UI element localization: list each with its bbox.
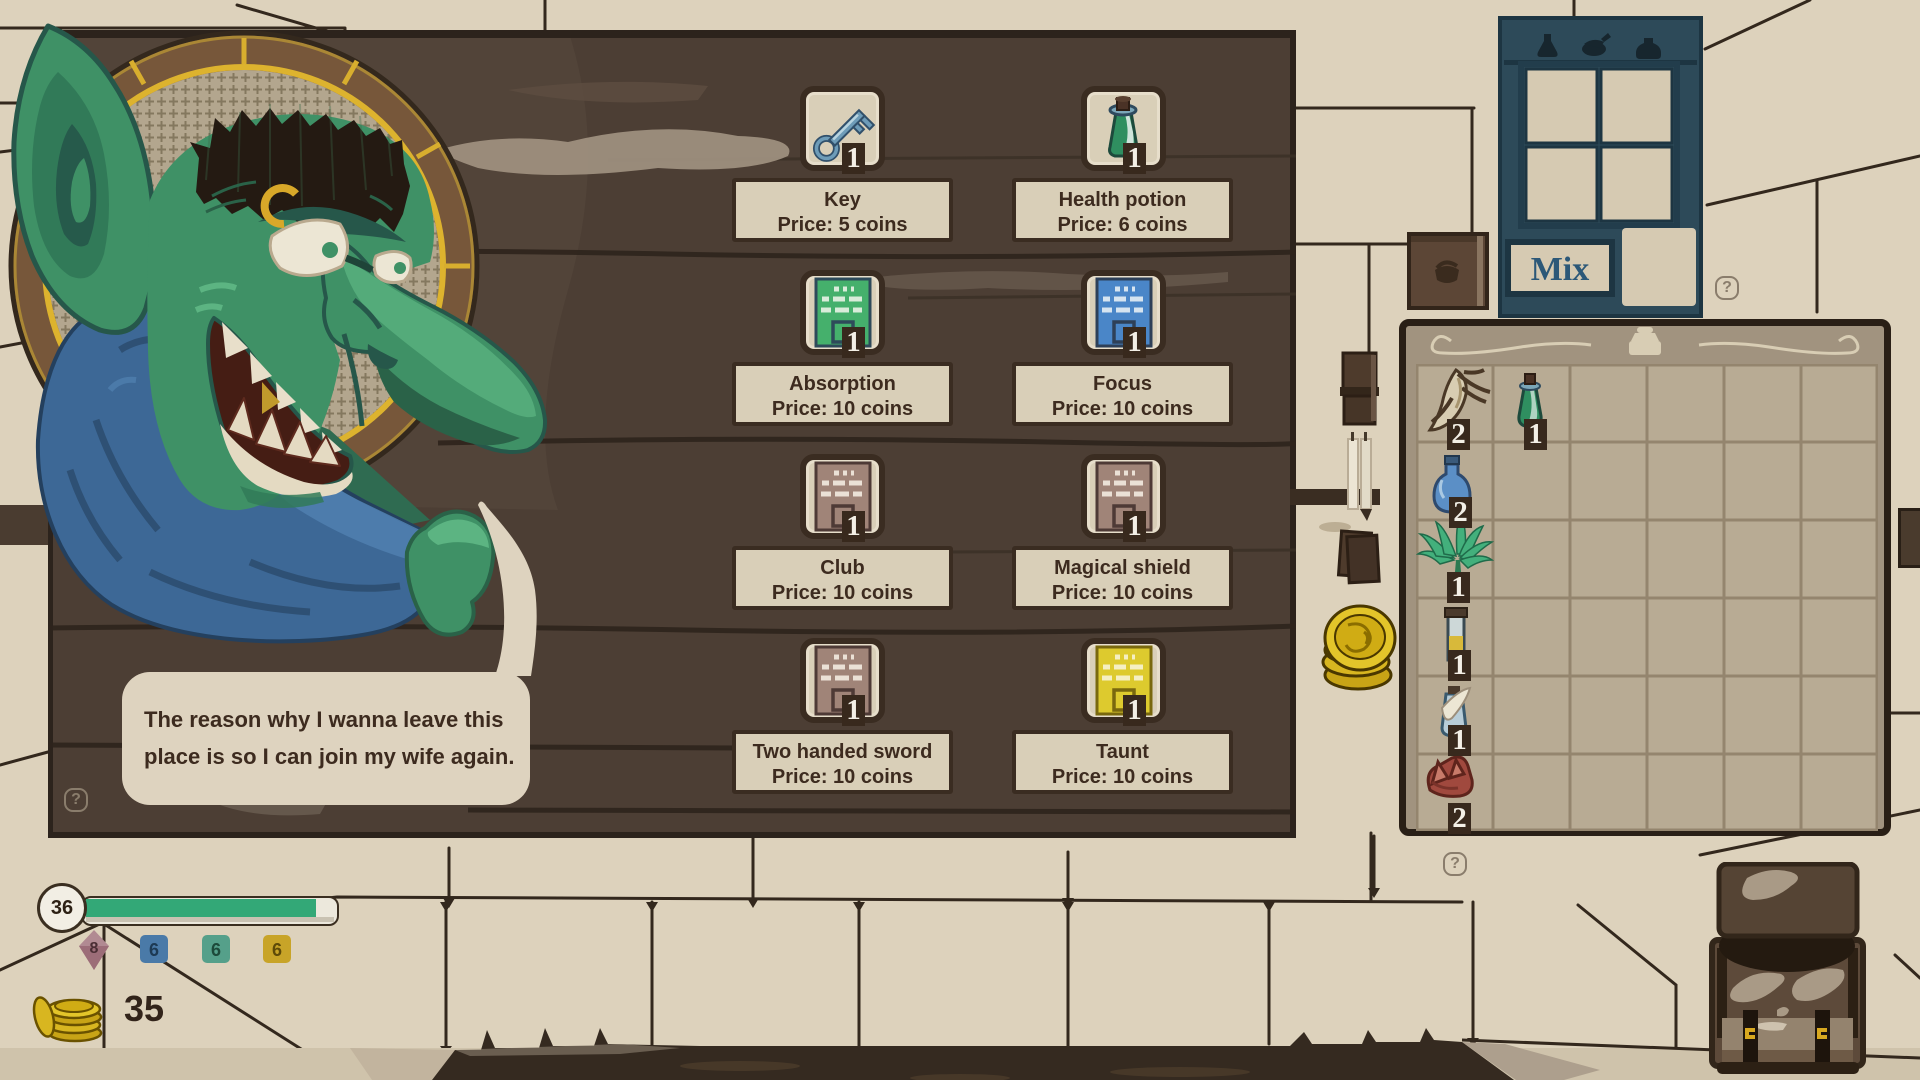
svg-text:6: 6	[211, 940, 221, 960]
svg-text:6: 6	[149, 940, 159, 960]
svg-text:Mix: Mix	[1531, 251, 1590, 288]
svg-text:6: 6	[272, 940, 282, 960]
svg-text:8: 8	[90, 940, 99, 957]
